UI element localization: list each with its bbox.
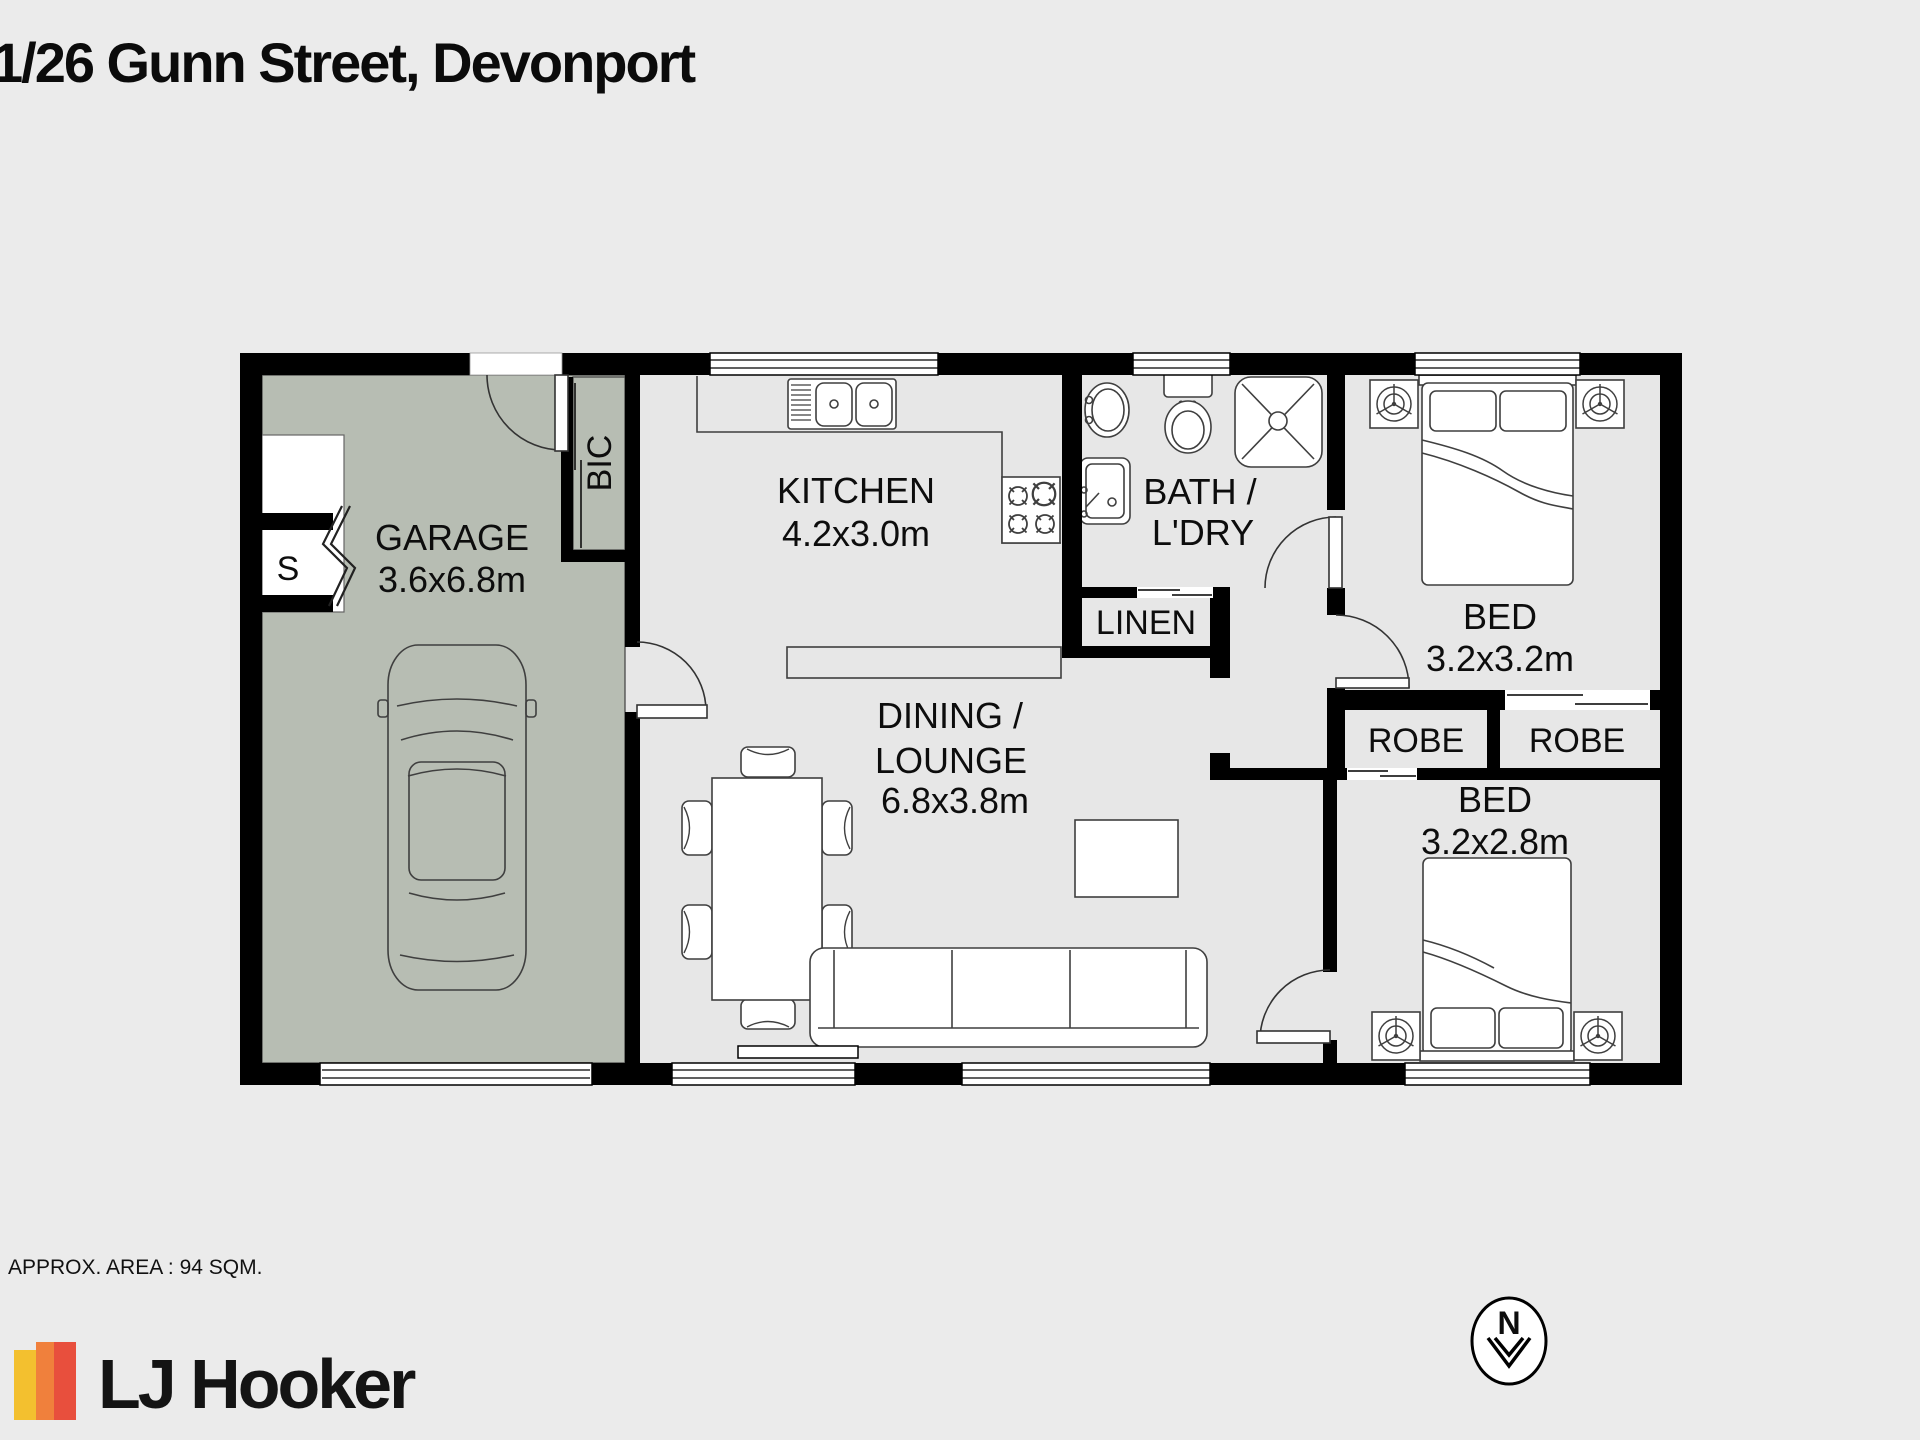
north-indicator: N: [1466, 1294, 1552, 1390]
garage-label: GARAGE: [375, 517, 529, 558]
linen-label: LINEN: [1096, 604, 1196, 642]
basin-icon: [1085, 383, 1129, 437]
floorplan-canvas: GARAGE 3.6x6.8m S BIC KITCHEN 4.2x3.0m B…: [0, 0, 1920, 1440]
bed2-window: [1405, 1063, 1590, 1085]
approx-area-text: APPROX. AREA : 94 SQM.: [8, 1256, 262, 1280]
lounge-window: [962, 1063, 1210, 1085]
robe2-slider: [1505, 690, 1650, 710]
bed2-label: BED: [1458, 779, 1532, 820]
bic-label: BIC: [581, 435, 619, 492]
kitchen-label: KITCHEN: [777, 470, 935, 511]
ljhooker-stripes-icon: [14, 1342, 76, 1420]
storage-label: S: [277, 550, 300, 588]
linen-slider: [1137, 587, 1213, 598]
bath-label-line2: L'DRY: [1152, 512, 1254, 553]
coffee-table: [1075, 820, 1178, 897]
north-label: N: [1497, 1305, 1520, 1341]
robe1-label: ROBE: [1368, 722, 1464, 760]
dining-label-line2: LOUNGE: [875, 740, 1027, 781]
sofa-icon: [810, 948, 1207, 1047]
bed2-dims: 3.2x2.8m: [1421, 821, 1569, 862]
bed1-dims: 3.2x3.2m: [1426, 638, 1574, 679]
toilet-icon: [1164, 371, 1212, 453]
dining-dims: 6.8x3.8m: [881, 780, 1029, 821]
kitchen-sink-icon: [788, 379, 896, 429]
ljhooker-logo-text: LJ Hooker: [98, 1348, 413, 1420]
ljhooker-logo: LJ Hooker: [14, 1342, 413, 1420]
kitchen-dims: 4.2x3.0m: [782, 513, 930, 554]
garage-roller-door: [320, 1063, 592, 1085]
bath-window: [1133, 353, 1230, 375]
bed1-window: [1415, 353, 1580, 375]
garage-dims: 3.6x6.8m: [378, 559, 526, 600]
robe2-label: ROBE: [1529, 722, 1625, 760]
shower-icon: [1235, 377, 1322, 467]
robe1-slider: [1347, 768, 1417, 780]
bed1-label: BED: [1463, 596, 1537, 637]
bath-label-line1: BATH /: [1143, 471, 1256, 512]
laundry-trough-icon: [1080, 458, 1130, 524]
kitchen-window: [710, 353, 938, 375]
dining-label-line1: DINING /: [877, 695, 1023, 736]
stove-icon: [1002, 477, 1060, 543]
